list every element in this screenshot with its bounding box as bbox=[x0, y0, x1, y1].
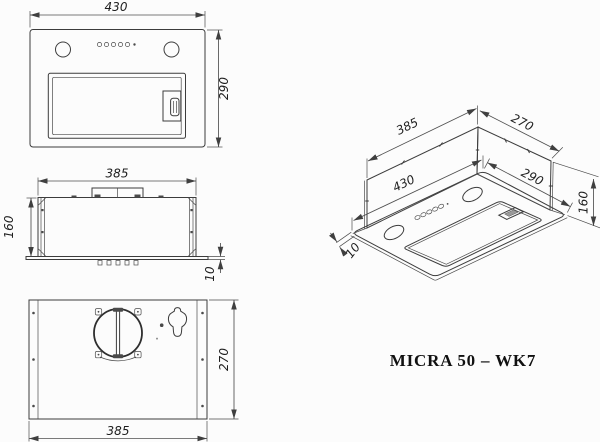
plan-view: 385 270 bbox=[29, 300, 239, 442]
front-dim-width: 430 bbox=[30, 0, 205, 28]
dimension-label: 290 bbox=[217, 77, 231, 100]
lamp-right-icon bbox=[164, 42, 179, 57]
front-dim-height: 290 bbox=[207, 30, 231, 147]
iso-filter-latch bbox=[499, 208, 523, 220]
iso-dim-height: 160 bbox=[553, 162, 600, 228]
technical-drawing-svg: 430 290 bbox=[0, 0, 600, 442]
keyhole-mount-slot bbox=[168, 308, 186, 337]
filter-latch bbox=[163, 91, 181, 121]
dimension-label: 385 bbox=[394, 115, 421, 138]
drawing-sheet: 430 290 bbox=[0, 0, 600, 442]
dimension-label: 10 bbox=[203, 266, 217, 282]
exhaust-outlet bbox=[94, 308, 142, 361]
model-title: MICRA 50 – WK7 bbox=[390, 351, 536, 370]
iso-view: 385 270 430 290 160 bbox=[331, 106, 600, 281]
screw-marks bbox=[41, 196, 192, 234]
side-view: 385 160 10 bbox=[2, 167, 225, 282]
dimension-label: 270 bbox=[217, 348, 231, 371]
dimension-label: 270 bbox=[509, 111, 536, 134]
side-outline bbox=[38, 198, 196, 257]
iso-flange-outline bbox=[355, 172, 564, 275]
iso-lamp-left-icon bbox=[382, 222, 406, 242]
side-dim-width: 385 bbox=[38, 167, 196, 196]
pilot-hole-icon bbox=[156, 338, 158, 340]
plan-dim-width: 385 bbox=[29, 421, 207, 442]
dimension-label: 160 bbox=[577, 191, 591, 214]
duct-connector bbox=[92, 188, 143, 198]
bottom-flange bbox=[26, 257, 208, 260]
iso-filter-inner bbox=[408, 204, 537, 265]
plan-outline bbox=[29, 300, 207, 419]
dimension-label: 160 bbox=[2, 215, 16, 238]
dimension-label: 385 bbox=[106, 167, 129, 181]
iso-dim-body-depth: 270 bbox=[480, 111, 563, 158]
side-buttons bbox=[98, 261, 138, 266]
side-dim-flange: 10 bbox=[203, 243, 225, 282]
iso-flange-thickness bbox=[351, 218, 568, 280]
control-buttons bbox=[97, 42, 135, 46]
lamp-left-icon bbox=[56, 42, 71, 57]
side-dim-height: 160 bbox=[2, 198, 37, 257]
iso-control-buttons bbox=[414, 203, 448, 220]
plan-dim-depth: 270 bbox=[209, 300, 239, 419]
iso-dim-body-width: 385 bbox=[367, 106, 478, 179]
rail-screws bbox=[32, 312, 204, 408]
dimension-label: 10 bbox=[343, 240, 364, 261]
iso-right-wall bbox=[477, 127, 551, 210]
dimension-label: 430 bbox=[390, 172, 417, 195]
dimension-label: 385 bbox=[107, 424, 130, 438]
filter-frame-outer bbox=[48, 73, 185, 138]
filter-frame-inner bbox=[53, 77, 182, 134]
cable-hole-icon bbox=[160, 323, 164, 327]
dimension-label: 430 bbox=[105, 0, 128, 14]
front-view: 430 290 bbox=[30, 0, 231, 147]
corner-braces bbox=[39, 198, 196, 256]
iso-lamp-right-icon bbox=[460, 184, 484, 204]
iso-filter-outer bbox=[405, 202, 541, 266]
indicator-led-icon bbox=[133, 43, 135, 45]
dimension-label: 290 bbox=[519, 165, 546, 188]
